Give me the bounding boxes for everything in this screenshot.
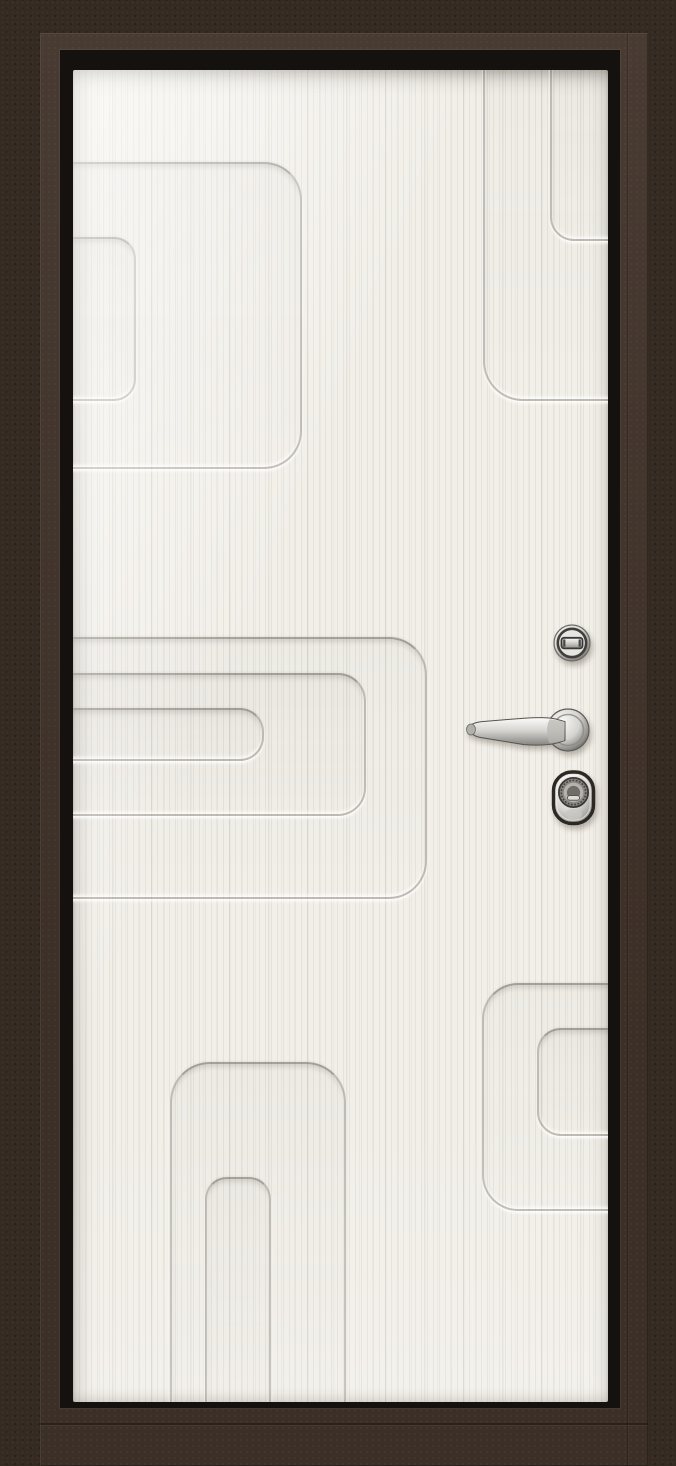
cylinder-lock — [548, 766, 600, 830]
groove-top-right-inner — [550, 70, 608, 241]
lever-handle — [450, 702, 595, 760]
groove-middle-left-pill — [73, 708, 264, 761]
frame-right-seam — [627, 33, 628, 1466]
groove-bottom-arch-inner — [205, 1177, 271, 1402]
groove-bottom-right-inner — [537, 1028, 608, 1136]
door-photo — [0, 0, 676, 1466]
frame-bottom-seam — [40, 1423, 648, 1425]
thumbturn-knob — [550, 621, 594, 665]
groove-top-left-inner — [73, 237, 136, 401]
